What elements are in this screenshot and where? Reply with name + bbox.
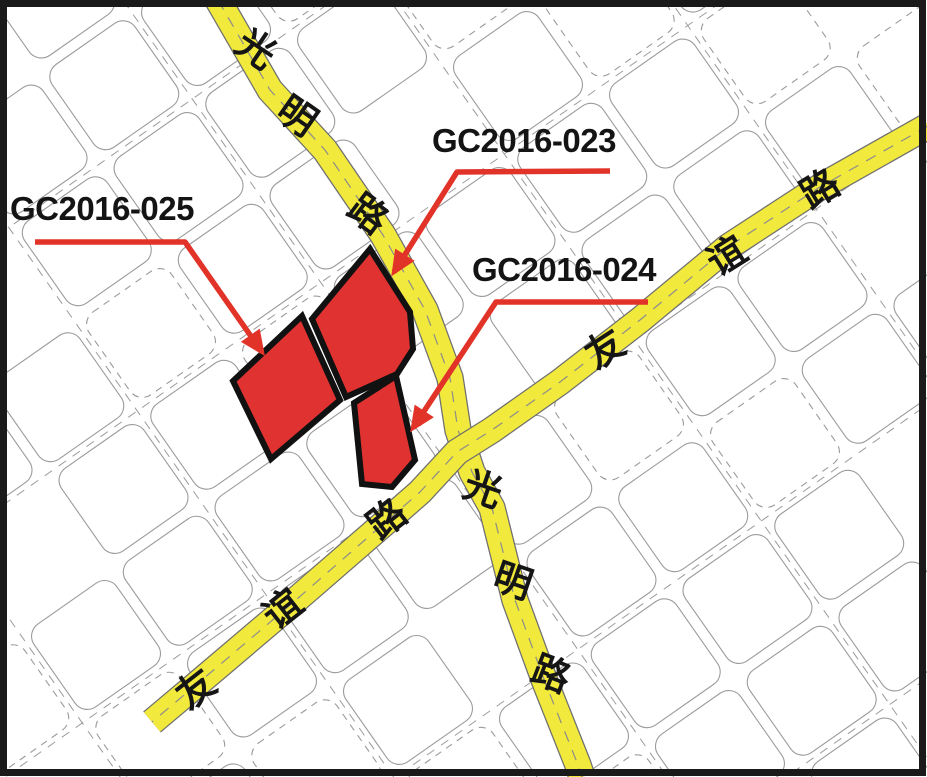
parcel-label-GC2016-024: GC2016-024 <box>472 251 657 288</box>
parcel-location-map-svg: 光 明 路 光 明 路 友 谊 路 友 谊 路 GC2016-025 GC201… <box>0 0 927 777</box>
parcel-label-GC2016-023: GC2016-023 <box>432 122 616 159</box>
parcel-location-map: 光 明 路 光 明 路 友 谊 路 友 谊 路 GC2016-025 GC201… <box>0 0 927 777</box>
parcel-label-GC2016-025: GC2016-025 <box>10 190 194 227</box>
